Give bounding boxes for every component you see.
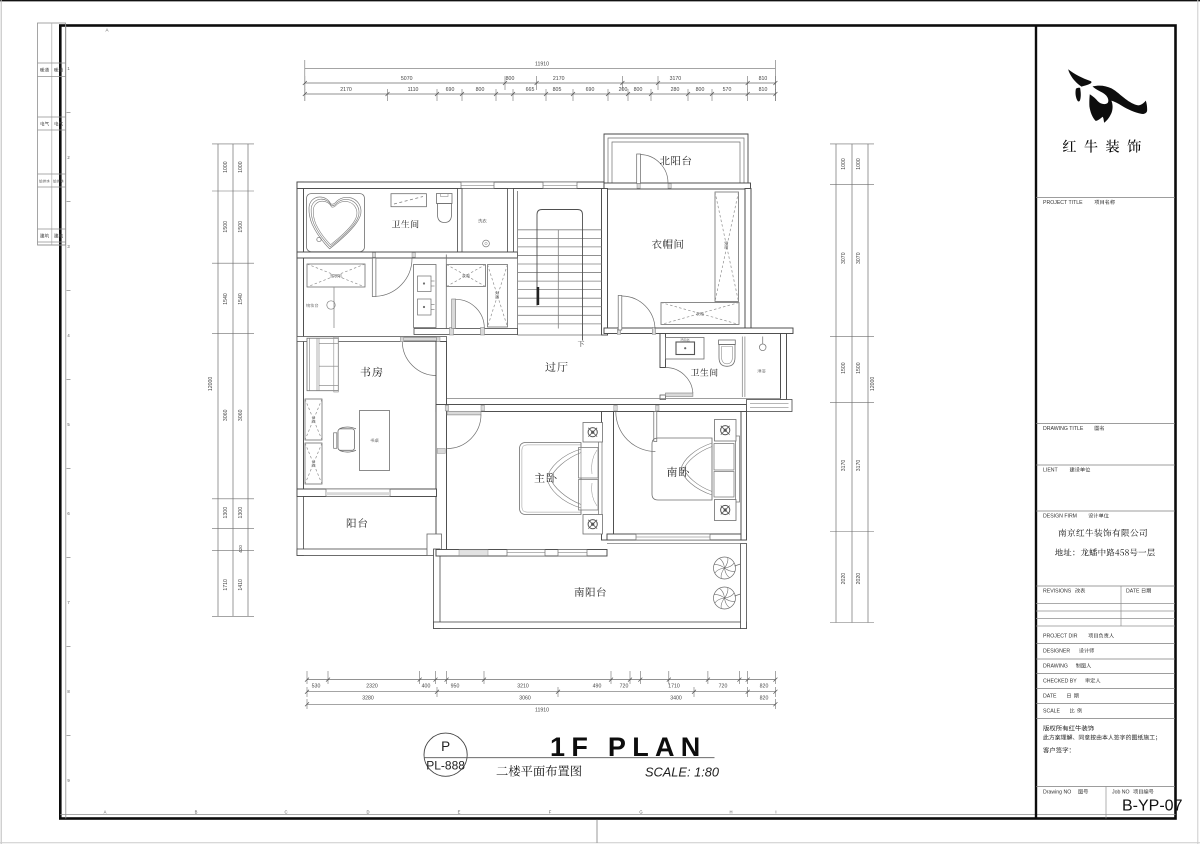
svg-text:1000: 1000 (223, 161, 229, 173)
svg-text:B-YP-07: B-YP-07 (1122, 798, 1183, 815)
svg-text:2170: 2170 (553, 76, 565, 82)
svg-text:1500: 1500 (223, 221, 229, 233)
svg-text:DATE: DATE (1126, 589, 1140, 595)
svg-text:2020: 2020 (856, 573, 862, 585)
svg-text:3060: 3060 (238, 409, 244, 421)
svg-text:1500: 1500 (841, 362, 847, 374)
svg-text:805: 805 (553, 87, 562, 93)
svg-text:530: 530 (312, 683, 321, 689)
svg-text:A: A (105, 28, 108, 33)
svg-text:11910: 11910 (535, 708, 549, 714)
svg-text:12000: 12000 (870, 377, 876, 392)
svg-text:A: A (104, 809, 107, 814)
svg-text:PL-888: PL-888 (426, 759, 465, 773)
svg-text:1710: 1710 (223, 579, 229, 591)
svg-text:G: G (639, 809, 642, 814)
svg-text:2320: 2320 (366, 683, 378, 689)
svg-text:800: 800 (634, 87, 643, 93)
svg-text:1000: 1000 (841, 158, 847, 170)
svg-text:E: E (458, 809, 461, 814)
svg-text:DESIGN FIRM: DESIGN FIRM (1043, 514, 1077, 520)
svg-text:810: 810 (759, 87, 768, 93)
svg-text:P: P (441, 739, 450, 754)
svg-text:CHECKED BY: CHECKED BY (1043, 679, 1077, 685)
svg-text:1F PLAN: 1F PLAN (550, 732, 707, 762)
svg-text:PROJECT TITLE: PROJECT TITLE (1043, 200, 1083, 206)
svg-text:720: 720 (719, 683, 728, 689)
svg-text:SCALE: SCALE (1043, 709, 1061, 715)
svg-text:2170: 2170 (340, 87, 352, 93)
svg-text:3170: 3170 (670, 76, 682, 82)
svg-text:PROJECT DIR: PROJECT DIR (1043, 634, 1078, 640)
svg-text:3170: 3170 (856, 460, 862, 472)
svg-text:1500: 1500 (238, 221, 244, 233)
svg-text:820: 820 (760, 683, 769, 689)
svg-text:1540: 1540 (238, 293, 244, 305)
svg-text:3170: 3170 (841, 460, 847, 472)
svg-text:1300: 1300 (223, 507, 229, 519)
svg-text:3400: 3400 (670, 696, 682, 702)
svg-text:690: 690 (446, 87, 455, 93)
svg-text:1000: 1000 (856, 158, 862, 170)
svg-text:720: 720 (620, 683, 629, 689)
svg-text:2020: 2020 (841, 573, 847, 585)
svg-text:C: C (284, 809, 287, 814)
svg-text:H: H (729, 809, 732, 814)
svg-text:3210: 3210 (517, 683, 529, 689)
svg-text:3060: 3060 (519, 696, 531, 702)
svg-text:B: B (195, 809, 198, 814)
svg-text:12000: 12000 (208, 377, 214, 392)
svg-text:570: 570 (723, 87, 732, 93)
svg-text:SCALE: 1:80: SCALE: 1:80 (645, 765, 720, 780)
svg-text:200: 200 (619, 87, 628, 93)
svg-text:1540: 1540 (223, 293, 229, 305)
svg-text:3070: 3070 (841, 252, 847, 264)
svg-text:11910: 11910 (535, 62, 549, 68)
svg-text:F: F (549, 809, 552, 814)
svg-text:REVISIONS: REVISIONS (1043, 589, 1072, 595)
svg-text:950: 950 (451, 683, 460, 689)
svg-text:1500: 1500 (856, 362, 862, 374)
svg-text:810: 810 (759, 76, 768, 82)
svg-text:Drawing NO: Drawing NO (1043, 790, 1071, 796)
svg-text:3070: 3070 (856, 252, 862, 264)
svg-text:665: 665 (526, 87, 535, 93)
svg-text:420: 420 (238, 545, 243, 553)
svg-text:3060: 3060 (223, 409, 229, 421)
svg-text:1110: 1110 (408, 87, 419, 93)
svg-text:1710: 1710 (668, 683, 680, 689)
svg-text:DESIGNER: DESIGNER (1043, 649, 1070, 655)
svg-text:280: 280 (671, 87, 680, 93)
svg-text:DRAWING: DRAWING (1043, 664, 1068, 670)
svg-text:LIENT: LIENT (1043, 468, 1059, 474)
svg-text:3280: 3280 (362, 696, 374, 702)
svg-text:Job NO: Job NO (1112, 790, 1130, 796)
svg-text:800: 800 (476, 87, 485, 93)
svg-text:DRAWING TITLE: DRAWING TITLE (1043, 426, 1084, 432)
svg-text:1410: 1410 (238, 579, 244, 591)
svg-text:490: 490 (593, 683, 602, 689)
svg-text:5070: 5070 (401, 76, 413, 82)
svg-text:400: 400 (422, 683, 431, 689)
svg-text:1300: 1300 (238, 507, 244, 519)
svg-text:I: I (775, 809, 776, 814)
svg-text:1000: 1000 (238, 161, 244, 173)
svg-text:820: 820 (760, 696, 769, 702)
svg-text:690: 690 (586, 87, 595, 93)
svg-text:D: D (366, 809, 369, 814)
svg-text:800: 800 (696, 87, 705, 93)
svg-text:800: 800 (506, 76, 515, 82)
svg-text:DATE: DATE (1043, 694, 1057, 700)
